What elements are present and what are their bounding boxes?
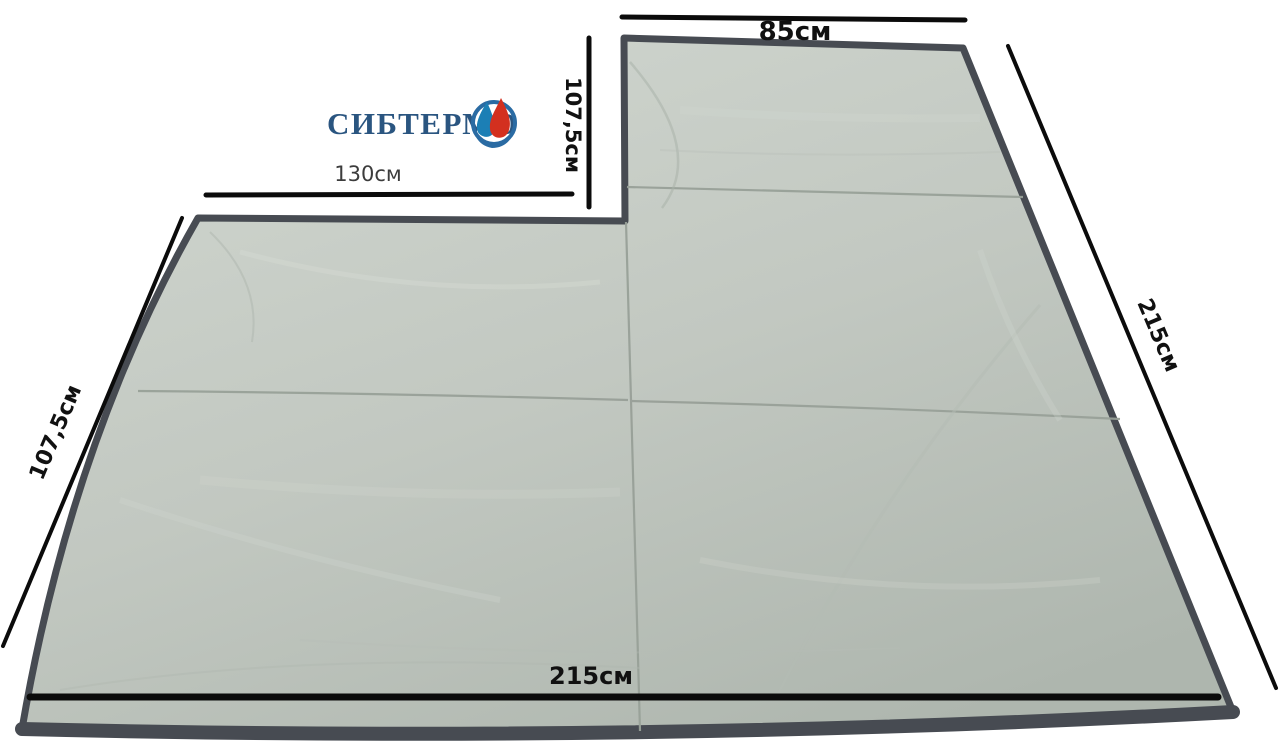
label-bottom-width: 215см xyxy=(549,662,633,690)
annotated-product-photo: 85см 107,5см 130см 107,5см 215см 215см С… xyxy=(0,0,1280,748)
product-dimension-image: 85см 107,5см 130см 107,5см 215см 215см С… xyxy=(0,0,1280,748)
mat-photo xyxy=(22,38,1233,734)
label-main-top-width: 130см xyxy=(334,162,401,186)
mat-body xyxy=(22,38,1233,734)
brand-logo: СИБТЕРМО xyxy=(327,98,519,148)
label-top-section-width: 85см xyxy=(759,17,832,47)
label-top-section-depth: 107,5см xyxy=(561,77,585,173)
dim-line-main-top-width xyxy=(206,194,572,195)
